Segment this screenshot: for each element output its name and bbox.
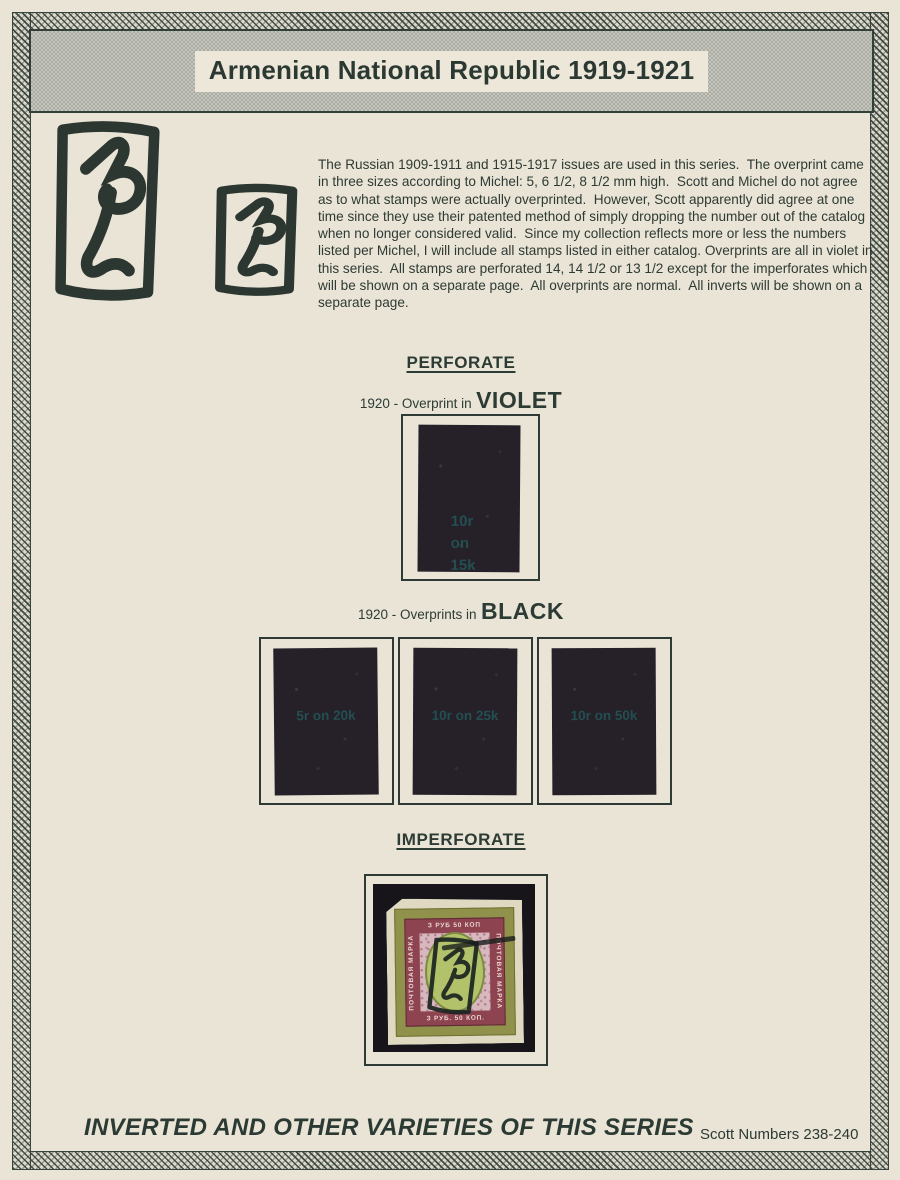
violet-surcharge-text: 10r on 15k (450, 511, 475, 577)
stamp-right-label: ПОЧТОВАЯ МАРКА (494, 918, 502, 1024)
page-border-bottom (12, 1151, 889, 1170)
black-stamp-1: 5r on 20k (273, 647, 379, 795)
page-border-left (12, 12, 31, 1170)
footer-caption: INVERTED AND OTHER VARIETIES OF THIS SER… (84, 1114, 694, 1142)
violet-stamp-mount: 10r on 15k (401, 414, 540, 581)
imperforate-stamp-mount: З РУБ 50 КОП З РУБ. 50 КОП. ПОЧТОВАЯ МАР… (364, 874, 548, 1066)
violet-stamp: 10r on 15k (417, 425, 520, 573)
violet-subheading: 1920 - Overprint in VIOLET (30, 387, 870, 414)
black-stamp-mount-3: 10r on 50k (537, 637, 672, 805)
perforate-heading: PERFORATE (407, 353, 516, 372)
armenian-monogram-small-icon (210, 181, 304, 299)
violet-year-label: 1920 - Overprint in (360, 396, 472, 411)
title-banner: Armenian National Republic 1919-1921 (29, 29, 874, 113)
black-year-label: 1920 - Overprints in (358, 607, 477, 622)
black-stamp-mount-2: 10r on 25k (398, 637, 533, 805)
black-stamp-3: 10r on 50k (552, 648, 657, 796)
black-color-word: BLACK (481, 598, 564, 624)
stamp-left-label: ПОЧТОВАЯ МАРКА (407, 920, 415, 1026)
black-surcharge-text-2: 10r on 25k (413, 708, 517, 724)
black-stamp-2: 10r on 25k (413, 648, 518, 796)
imperforate-section-header: IMPERFORATE (30, 830, 870, 850)
black-surcharge-text-1: 5r on 20k (274, 707, 378, 723)
black-surcharge-text-3: 10r on 50k (552, 708, 656, 724)
intro-paragraph: The Russian 1909-1911 and 1915-1917 issu… (318, 156, 874, 312)
stamp-olive-frame: З РУБ 50 КОП З РУБ. 50 КОП. ПОЧТОВАЯ МАР… (394, 907, 516, 1037)
imperforate-heading: IMPERFORATE (396, 830, 525, 849)
armenian-monogram-large-icon (50, 119, 168, 303)
imperforate-stamp-photo: З РУБ 50 КОП З РУБ. 50 КОП. ПОЧТОВАЯ МАР… (373, 884, 535, 1052)
imperforate-stamp: З РУБ 50 КОП З РУБ. 50 КОП. ПОЧТОВАЯ МАР… (386, 897, 524, 1045)
black-stamp-mount-1: 5r on 20k (259, 637, 394, 805)
page-title: Armenian National Republic 1919-1921 (195, 51, 708, 92)
stamp-maroon-frame: З РУБ 50 КОП З РУБ. 50 КОП. ПОЧТОВАЯ МАР… (404, 917, 505, 1026)
violet-color-word: VIOLET (476, 387, 562, 413)
perforate-section-header: PERFORATE (30, 353, 870, 373)
stamp-center-panel (419, 933, 490, 1012)
black-subheading: 1920 - Overprints in BLACK (30, 598, 870, 625)
scott-numbers-label: Scott Numbers 238-240 (700, 1126, 858, 1143)
stamp-top-label: З РУБ 50 КОП (405, 921, 503, 929)
